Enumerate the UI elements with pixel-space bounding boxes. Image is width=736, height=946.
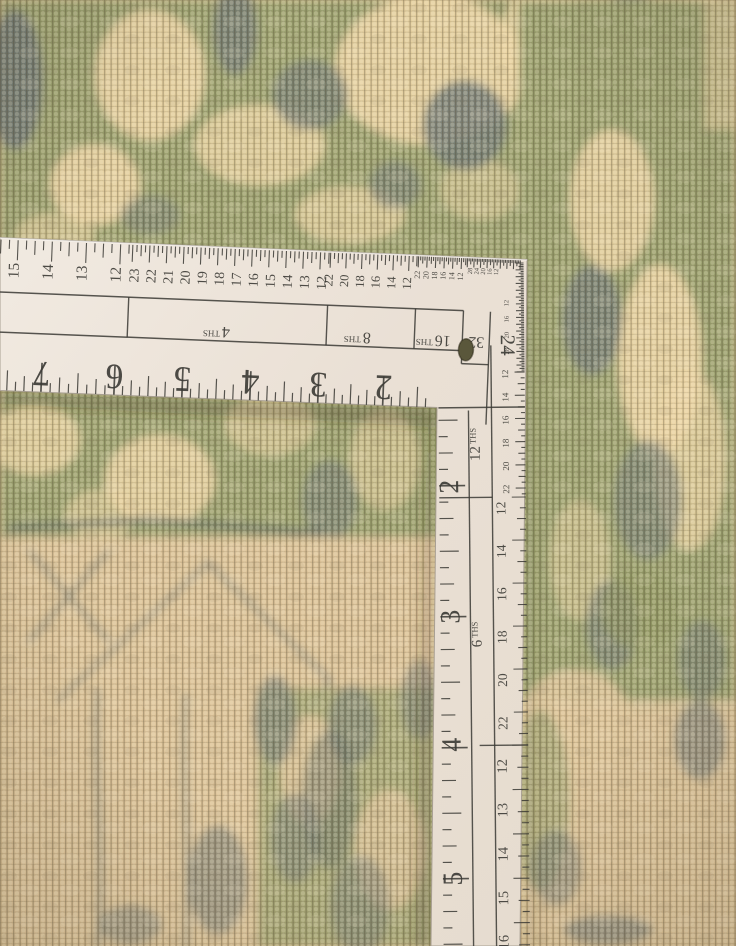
ruler-tick xyxy=(131,380,132,395)
right-scale-number: 16 xyxy=(500,415,510,425)
top-scale-number: 20 xyxy=(337,274,351,287)
ruler-tick xyxy=(103,244,104,258)
ruler-tick xyxy=(59,378,60,393)
top-scale-number: 13 xyxy=(73,265,91,281)
right-scale-number: 20 xyxy=(495,673,510,687)
section-line xyxy=(439,497,492,498)
right-scale-number: 16 xyxy=(496,935,512,946)
right-scale-number: 20 xyxy=(501,461,511,471)
ruler-tick xyxy=(346,253,347,268)
ruler-tick xyxy=(183,247,184,264)
inch-number: 3 xyxy=(435,610,466,624)
right-scale-number: 12 xyxy=(500,370,510,379)
right-scale-number: 14 xyxy=(496,846,512,861)
right-scale-number: 16 xyxy=(494,587,509,601)
top-scale-number: 17 xyxy=(230,272,246,287)
top-scale-number: 15 xyxy=(5,262,23,278)
right-scale-number: 22 xyxy=(501,485,511,494)
ruler-tick xyxy=(218,248,219,265)
top-scale-number: 23 xyxy=(127,268,143,283)
ruler-tick xyxy=(267,386,268,401)
inch-number: 5 xyxy=(438,872,469,886)
right-scale-number: 22 xyxy=(495,716,510,730)
inch-number: 4 xyxy=(437,738,468,752)
ruler-tick xyxy=(366,390,367,405)
ruler-tick xyxy=(1,240,2,254)
right-scale-number: 13 xyxy=(495,803,511,818)
ruler-tick xyxy=(77,373,78,393)
ruler-tick xyxy=(284,382,285,402)
inner-corner-line xyxy=(438,407,524,408)
carpet-background xyxy=(0,0,736,946)
top-scale-number: 13 xyxy=(298,275,314,290)
ruler-tick xyxy=(400,391,401,406)
top-scale-number: 12 xyxy=(493,269,500,276)
right-scale-number: 14 xyxy=(500,392,510,402)
ruler-tick xyxy=(252,250,253,267)
top-scale-number: 19 xyxy=(196,271,212,286)
ruler-tick xyxy=(41,363,42,392)
ruler-tick xyxy=(7,370,8,390)
ruler-tick xyxy=(250,371,251,400)
ruler-tick xyxy=(199,383,200,398)
right-scale-number: 15 xyxy=(496,891,512,906)
ruler-tick xyxy=(409,256,410,271)
right-scale-number: 20 xyxy=(504,332,511,339)
top-scale-number: 14 xyxy=(384,275,399,289)
right-scale-number: 12 xyxy=(493,501,508,515)
right-scale-number: 12 xyxy=(503,300,510,307)
ruler-hole xyxy=(458,338,474,361)
rug-and-ruler-photo: 1514131223222120191817161514131222201816… xyxy=(0,0,736,946)
ruler-tick xyxy=(166,246,167,263)
ruler-tick xyxy=(132,245,133,262)
ruler-tick xyxy=(149,246,150,263)
ruler-tick xyxy=(330,253,331,268)
right-scale-number: 12 xyxy=(495,759,511,774)
ruler-tick xyxy=(233,384,234,399)
right-scale-number: 18 xyxy=(501,438,511,448)
ruler-tick xyxy=(235,249,236,266)
top-scale-number: 16 xyxy=(368,276,382,289)
ruler-tick xyxy=(377,255,378,270)
ruler-tick xyxy=(393,255,394,270)
right-scale-number: 14 xyxy=(494,544,509,558)
ruler-tick xyxy=(216,379,217,399)
ruler-tick xyxy=(383,377,384,406)
top-scale-number: 21 xyxy=(161,270,177,285)
top-scale-number: 12 xyxy=(107,267,125,283)
ruler-tick xyxy=(286,251,287,268)
top-scale-number: 18 xyxy=(213,272,229,287)
ruler-tick xyxy=(320,252,321,269)
ruler-tick xyxy=(334,389,335,404)
photo-vignette xyxy=(0,0,736,946)
top-scale-number: 15 xyxy=(264,274,280,289)
ruler-tick xyxy=(301,387,302,402)
top-scale-number: 12 xyxy=(456,272,465,280)
ruler-tick xyxy=(24,376,25,391)
right-scale-number: 28 xyxy=(504,348,511,355)
ruler-tick xyxy=(35,241,36,255)
right-scale-number: 18 xyxy=(495,630,510,644)
ruler-tick xyxy=(269,250,270,267)
ruler-tick xyxy=(350,384,351,404)
ruler-tick xyxy=(114,366,115,395)
ruler-tick xyxy=(303,252,304,269)
top-scale-number: 22 xyxy=(144,269,160,284)
ruler-tick xyxy=(182,368,183,397)
top-scale-number: 22 xyxy=(321,274,335,287)
ruler-tick xyxy=(69,242,70,256)
ruler-tick xyxy=(417,387,418,407)
top-scale-number: 16 xyxy=(247,273,263,288)
ruler-tick xyxy=(165,382,166,397)
top-scale-number: 20 xyxy=(178,270,194,285)
top-scale-number: 18 xyxy=(353,275,367,288)
ruler-tick xyxy=(362,254,363,269)
top-scale-number: 14 xyxy=(39,264,57,280)
ruler-tick xyxy=(96,379,97,394)
inch-number: 2 xyxy=(434,480,465,494)
ruler-tick xyxy=(318,374,319,403)
ruler-tick xyxy=(148,376,149,396)
right-scale-number: 16 xyxy=(504,315,511,322)
ruler-tick xyxy=(200,248,201,265)
top-scale-number: 14 xyxy=(281,274,297,289)
scene-photo: 1514131223222120191817161514131222201816… xyxy=(0,0,736,946)
